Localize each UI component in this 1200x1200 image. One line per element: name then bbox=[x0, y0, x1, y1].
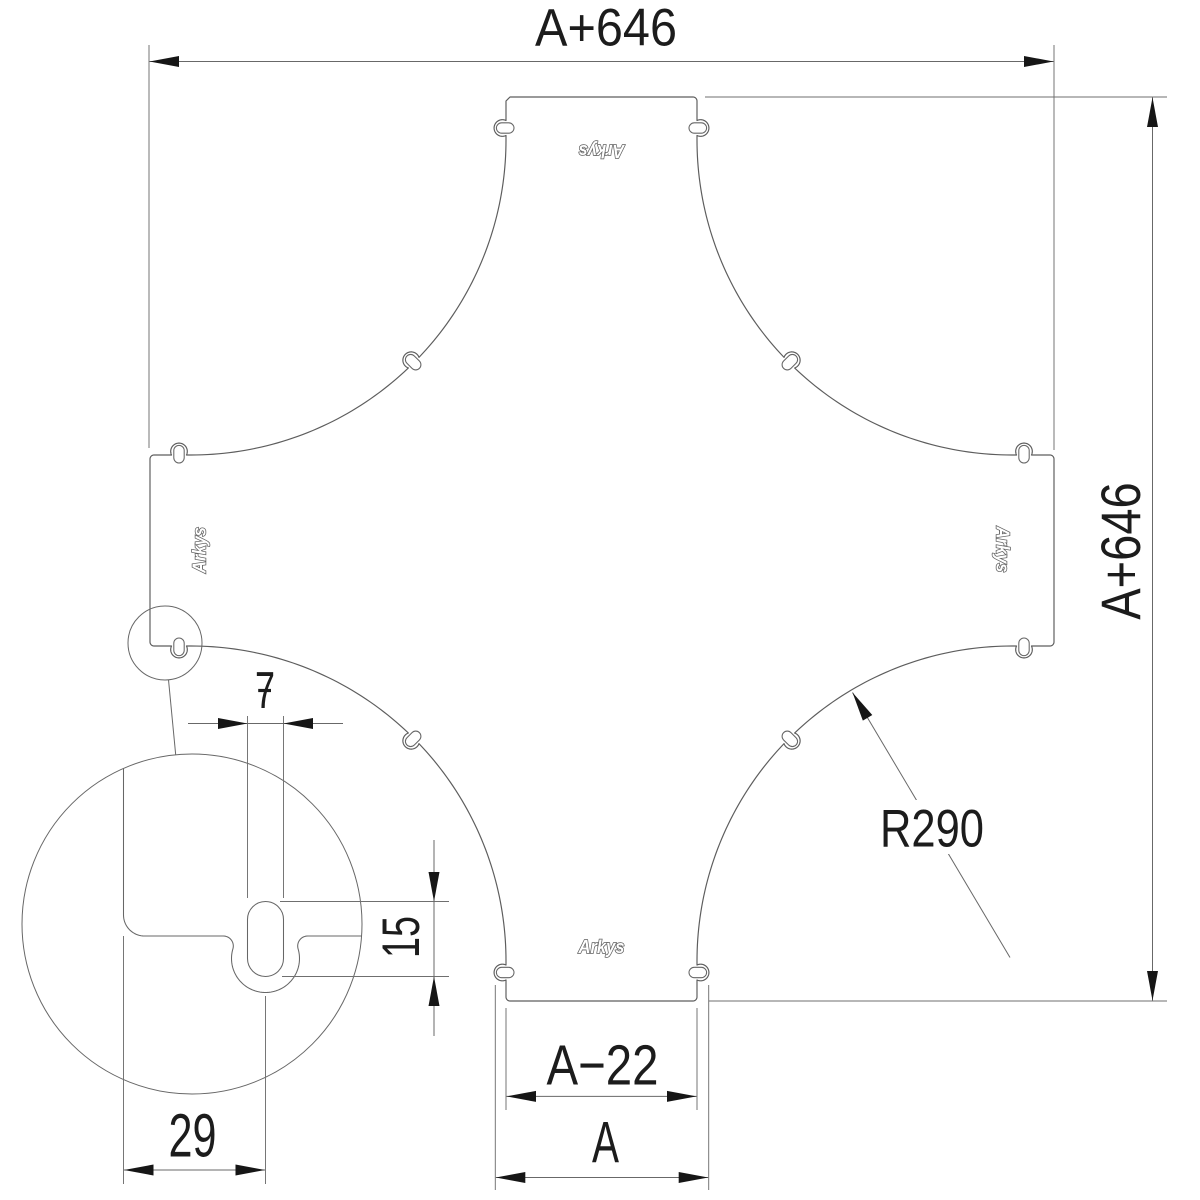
svg-text:15: 15 bbox=[372, 916, 431, 958]
svg-text:Arkys: Arkys bbox=[993, 526, 1014, 573]
svg-text:Arkys: Arkys bbox=[578, 936, 625, 957]
svg-text:A−22: A−22 bbox=[547, 1034, 659, 1098]
svg-text:29: 29 bbox=[169, 1102, 217, 1170]
svg-text:Arkys: Arkys bbox=[189, 527, 210, 574]
svg-text:A+646: A+646 bbox=[535, 0, 677, 58]
svg-text:A: A bbox=[592, 1111, 619, 1176]
svg-text:A+646: A+646 bbox=[1089, 482, 1152, 620]
svg-text:R290: R290 bbox=[880, 800, 984, 859]
svg-text:Arkys: Arkys bbox=[579, 141, 626, 162]
